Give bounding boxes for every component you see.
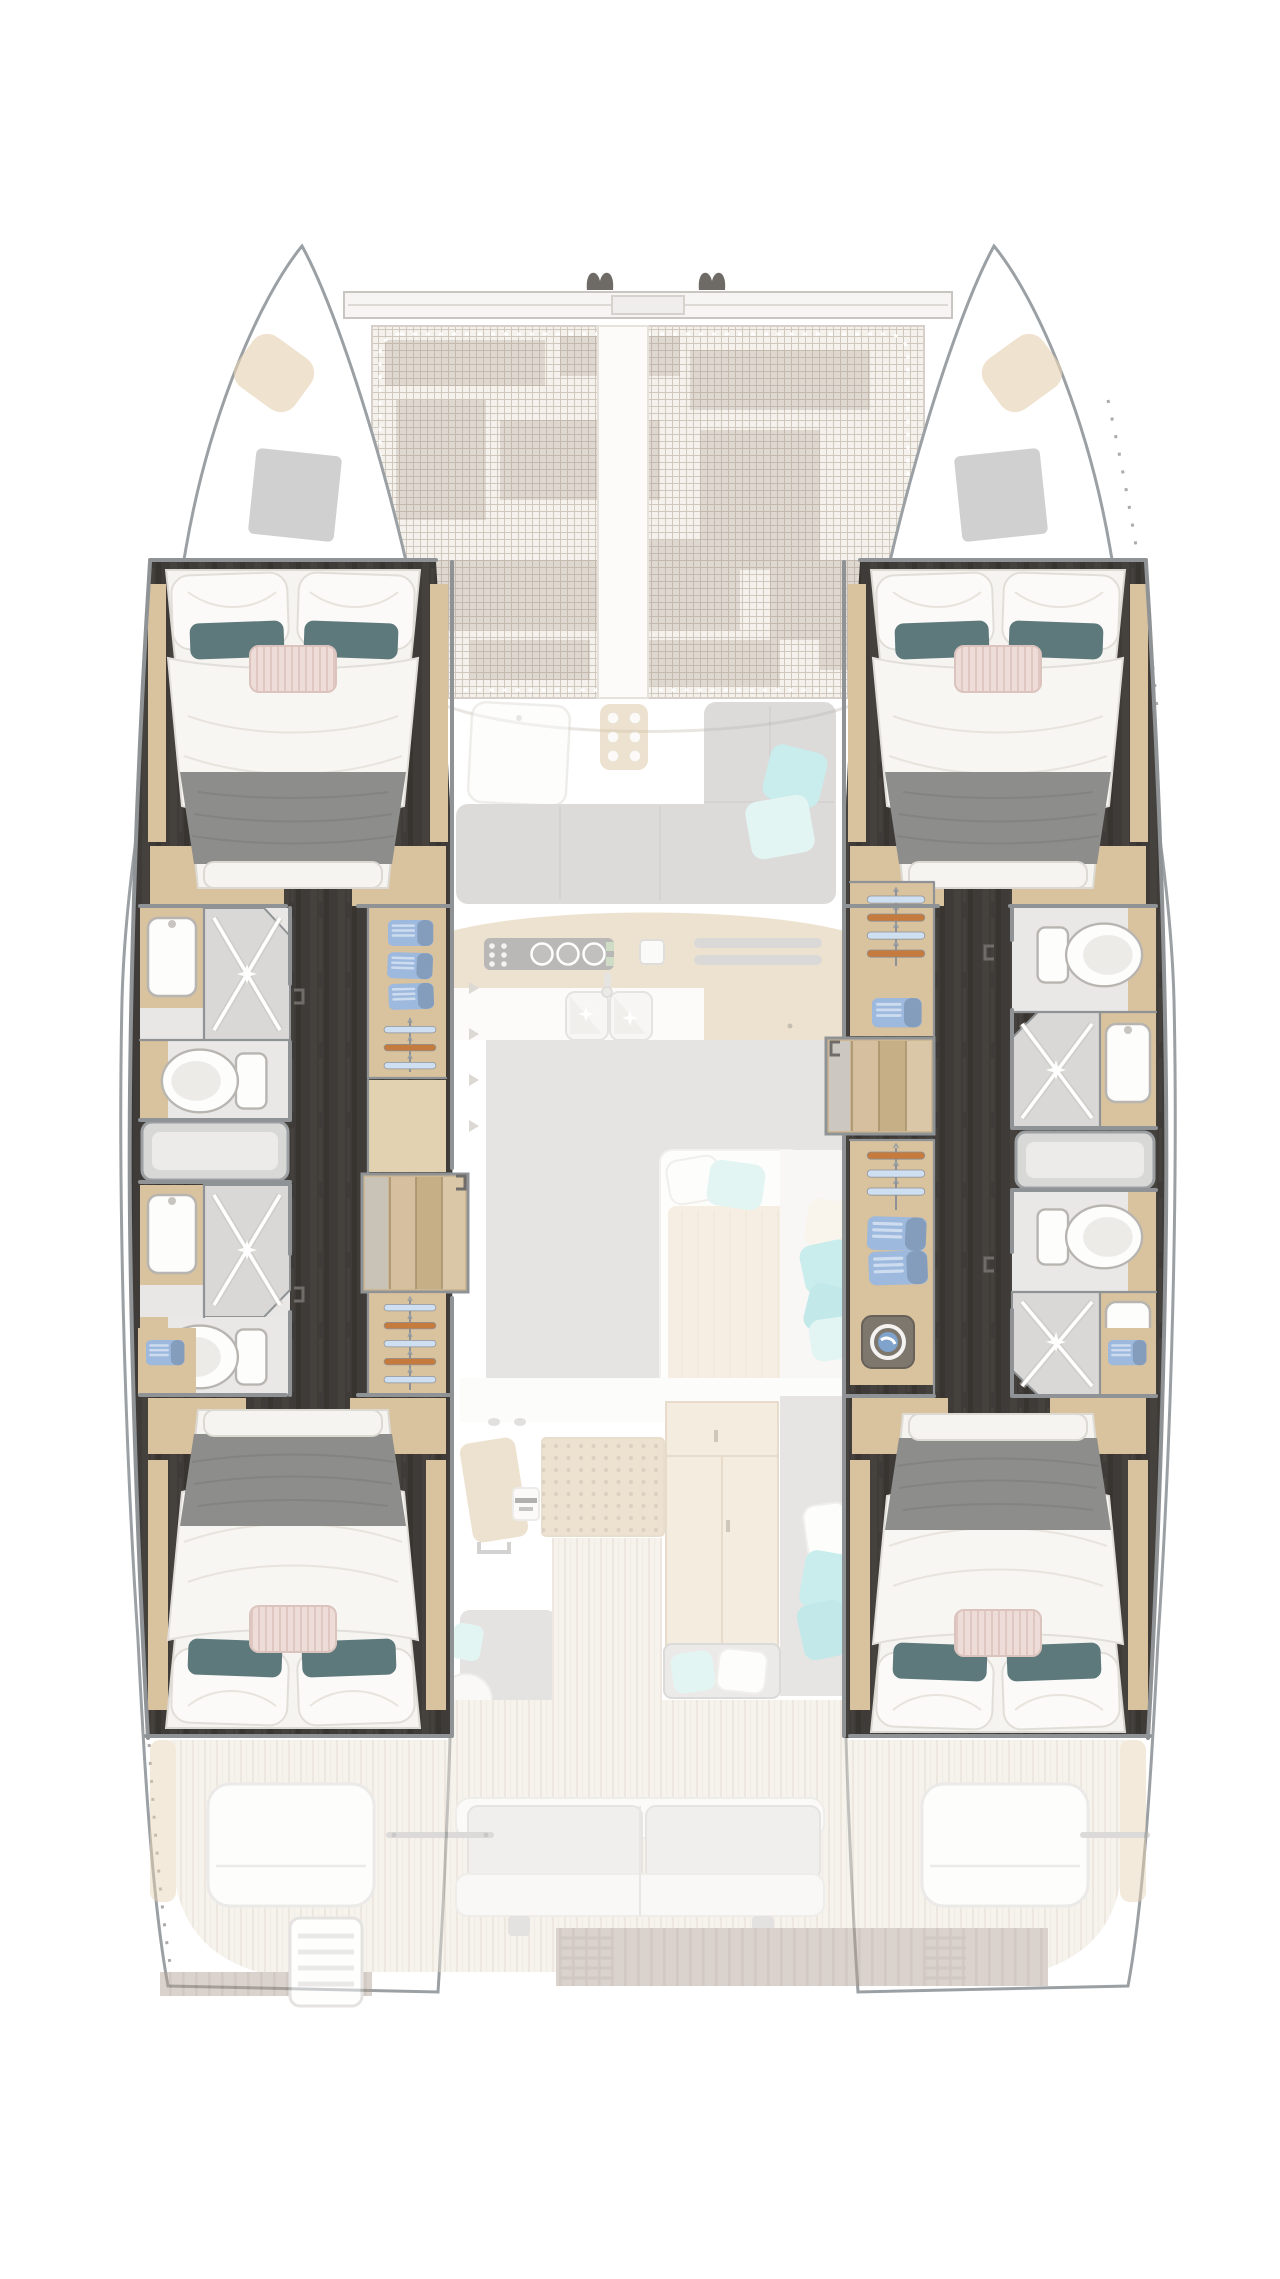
port-companionway-steps [362,1174,468,1292]
saloon [469,982,861,1396]
starboard-side-pad [1120,1740,1146,1902]
aft-sofa [456,1798,824,1936]
washbasin [1106,1024,1150,1102]
folded-towel [872,998,922,1027]
burners [532,944,605,965]
deck-track [1080,1832,1150,1838]
folded-towel [388,983,434,1010]
port-aft-berth [166,1410,420,1728]
toilet [1038,1206,1143,1269]
washbasin [148,918,196,996]
grab-rail [694,955,822,965]
starboard-aft-seat [922,1784,1088,1906]
white-pillow [716,1648,768,1695]
starboard-companionway-steps [826,1038,934,1134]
toilet [162,1050,267,1113]
folded-towel [146,1340,184,1365]
deck-track [386,1832,494,1838]
bow-crossbeam [344,273,952,318]
port-deck-hatch [248,448,343,543]
starboard-hull-interior [826,562,1166,1738]
port-hull-interior [130,562,468,1738]
folded-towel [388,920,433,946]
bow-cleat-icon [699,273,725,290]
washbasin [148,1195,196,1273]
starboard-aft-berth [871,1414,1125,1732]
folded-towel [867,1216,927,1251]
catamaran-floor-plan-page [0,0,1280,2279]
port-side-pad [150,1740,176,1902]
galley [448,913,848,1061]
toilet [1038,924,1143,987]
starboard-forward-bathroom [1012,908,1156,1128]
transom-platform [556,1928,1048,1986]
folded-towel [1108,1340,1146,1365]
net-center-walkway [598,326,648,698]
folded-towel [387,952,433,979]
floor-plan-canvas [0,0,1280,2279]
trampoline-net [372,326,924,698]
folded-towel [868,1250,928,1285]
galley-small-sink [640,940,664,964]
port-forward-berth [166,570,420,888]
bowsprit-fitting [612,296,684,314]
mint-pillow [743,793,816,861]
chaise-wood-pad [668,1206,794,1384]
starboard-forward-berth [871,570,1125,888]
mint-pillow [705,1158,767,1211]
boarding-ladder [290,1918,362,2006]
bow-cleat-icon [587,273,613,290]
washing-machine-icon [862,1316,914,1368]
grab-rail [694,938,822,948]
port-aft-seat [208,1784,374,1906]
mint-pillow [669,1649,716,1694]
port-forward-bathroom [140,908,290,1120]
starboard-deck-hatch [954,448,1049,543]
